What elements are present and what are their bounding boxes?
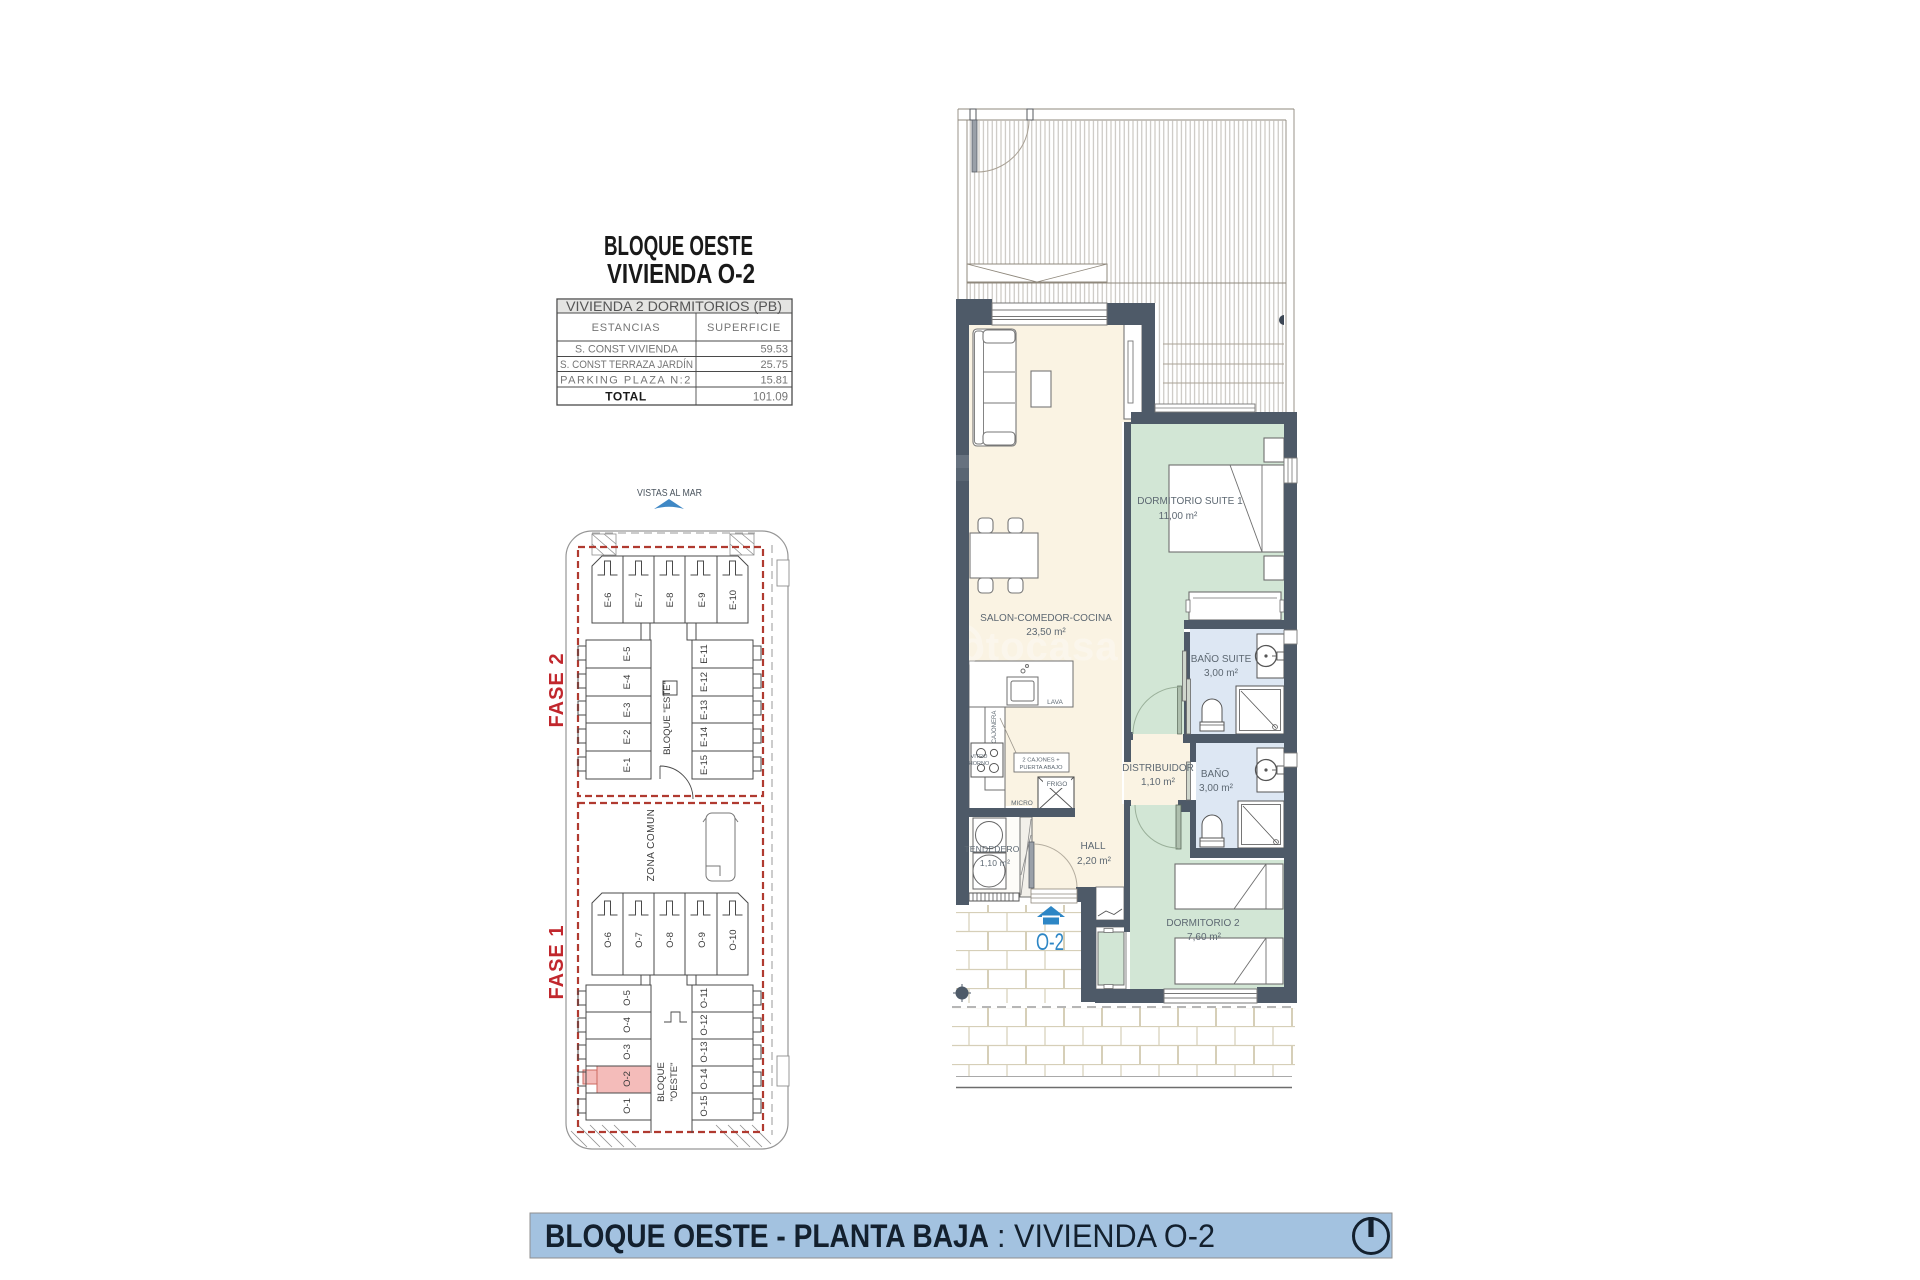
svg-text:BLOQUE: BLOQUE: [656, 1062, 667, 1102]
svg-text:SALON-COMEDOR-COCINA: SALON-COMEDOR-COCINA: [980, 613, 1112, 624]
svg-text:3,00 m²: 3,00 m²: [1204, 668, 1239, 679]
svg-text:7,60 m²: 7,60 m²: [1187, 932, 1222, 943]
svg-text:BAÑO SUITE: BAÑO SUITE: [1191, 652, 1252, 665]
svg-text:O-2: O-2: [1036, 929, 1064, 956]
svg-text:E-1: E-1: [622, 758, 633, 773]
svg-text:MICRO: MICRO: [1011, 800, 1033, 807]
svg-text:VIVIENDA O-2: VIVIENDA O-2: [607, 258, 755, 289]
svg-text:DORMITORIO SUITE 1: DORMITORIO SUITE 1: [1137, 496, 1243, 507]
svg-text:VITRO: VITRO: [971, 754, 989, 760]
svg-text:S. CONST TERRAZA JARDÍN: S. CONST TERRAZA JARDÍN: [560, 358, 693, 371]
svg-text:ZONA COMUN: ZONA COMUN: [646, 809, 657, 882]
svg-text:E-8: E-8: [665, 593, 676, 608]
svg-text:2 CAJONES +: 2 CAJONES +: [1022, 758, 1060, 764]
svg-text:O-5: O-5: [622, 990, 633, 1006]
svg-text:PUERTA ABAJO: PUERTA ABAJO: [1020, 765, 1063, 771]
svg-text:BLOQUE OESTE - PLANTA BAJA: BLOQUE OESTE - PLANTA BAJA: [545, 1218, 989, 1254]
svg-text:HORNO: HORNO: [969, 761, 990, 767]
svg-text:O-9: O-9: [697, 932, 708, 948]
svg-text:O-14: O-14: [699, 1068, 710, 1089]
svg-text:O-8: O-8: [665, 932, 676, 948]
svg-text:15.81: 15.81: [760, 375, 788, 387]
svg-text:HALL: HALL: [1080, 841, 1105, 852]
svg-text:E-11: E-11: [699, 644, 710, 663]
svg-text:O-2: O-2: [622, 1071, 633, 1087]
svg-text:O-15: O-15: [699, 1095, 710, 1116]
svg-text:59.53: 59.53: [760, 344, 788, 356]
svg-text:11,00 m²: 11,00 m²: [1159, 511, 1198, 522]
svg-text:O-12: O-12: [699, 1014, 710, 1035]
svg-text:E-9: E-9: [697, 593, 708, 608]
svg-text:E-2: E-2: [622, 730, 633, 745]
svg-text:E-15: E-15: [699, 755, 710, 775]
svg-text:VIVIENDA 2 DORMITORIOS (PB): VIVIENDA 2 DORMITORIOS (PB): [566, 299, 782, 314]
svg-text:FRIGO: FRIGO: [1047, 781, 1068, 788]
svg-text:O-10: O-10: [728, 929, 739, 950]
svg-text:O-4: O-4: [622, 1017, 633, 1033]
svg-text:TOTAL: TOTAL: [605, 390, 646, 404]
svg-text:S. CONST VIVIENDA: S. CONST VIVIENDA: [575, 344, 679, 356]
svg-text:O-13: O-13: [699, 1041, 710, 1062]
svg-text:BAÑO: BAÑO: [1201, 767, 1230, 780]
svg-text:CAJONERA: CAJONERA: [992, 711, 998, 744]
svg-text:O-1: O-1: [622, 1098, 633, 1114]
svg-text:VISTAS AL MAR: VISTAS AL MAR: [637, 488, 702, 499]
svg-text:DORMITORIO 2: DORMITORIO 2: [1166, 918, 1240, 929]
svg-text:"OESTE": "OESTE": [669, 1063, 680, 1102]
svg-text:BLOQUE OESTE: BLOQUE OESTE: [604, 230, 753, 261]
svg-text:O-7: O-7: [634, 932, 645, 948]
svg-text:ESTANCIAS: ESTANCIAS: [592, 322, 661, 334]
svg-text:25.75: 25.75: [760, 359, 788, 371]
svg-text:E-14: E-14: [699, 727, 710, 747]
svg-text:E-6: E-6: [603, 593, 614, 608]
svg-text:O-3: O-3: [622, 1044, 633, 1060]
svg-text:TENDEDERO: TENDEDERO: [964, 844, 1019, 854]
svg-text:2,20 m²: 2,20 m²: [1077, 856, 1112, 867]
svg-text:101.09: 101.09: [753, 392, 788, 404]
svg-text:3,00 m²: 3,00 m²: [1199, 783, 1234, 794]
svg-text:1,10 m²: 1,10 m²: [1141, 777, 1176, 788]
svg-text:E-5: E-5: [622, 647, 633, 662]
svg-text:FASE 2: FASE 2: [546, 653, 568, 728]
svg-text:: VIVIENDA O-2: : VIVIENDA O-2: [997, 1218, 1215, 1254]
svg-text:O-11: O-11: [699, 988, 710, 1008]
svg-text:E-3: E-3: [622, 703, 633, 718]
svg-text:E-10: E-10: [728, 590, 739, 610]
svg-text:FASE 1: FASE 1: [546, 925, 568, 1000]
svg-text:SUPERFICIE: SUPERFICIE: [707, 322, 781, 334]
svg-text:E-12: E-12: [699, 672, 710, 692]
svg-text:PARKING PLAZA N:2: PARKING PLAZA N:2: [560, 375, 692, 387]
svg-text:1,10 m²: 1,10 m²: [980, 858, 1010, 868]
svg-text:E-13: E-13: [699, 700, 710, 720]
svg-text:O-6: O-6: [603, 932, 614, 948]
svg-text:E-4: E-4: [622, 675, 633, 690]
svg-text:E-7: E-7: [634, 593, 645, 608]
svg-text:23,50 m²: 23,50 m²: [1026, 627, 1066, 638]
svg-text:DISTRIBUIDOR: DISTRIBUIDOR: [1122, 763, 1194, 774]
svg-text:BLOQUE "ESTE": BLOQUE "ESTE": [662, 681, 673, 755]
svg-text:LAVA: LAVA: [1047, 699, 1063, 706]
